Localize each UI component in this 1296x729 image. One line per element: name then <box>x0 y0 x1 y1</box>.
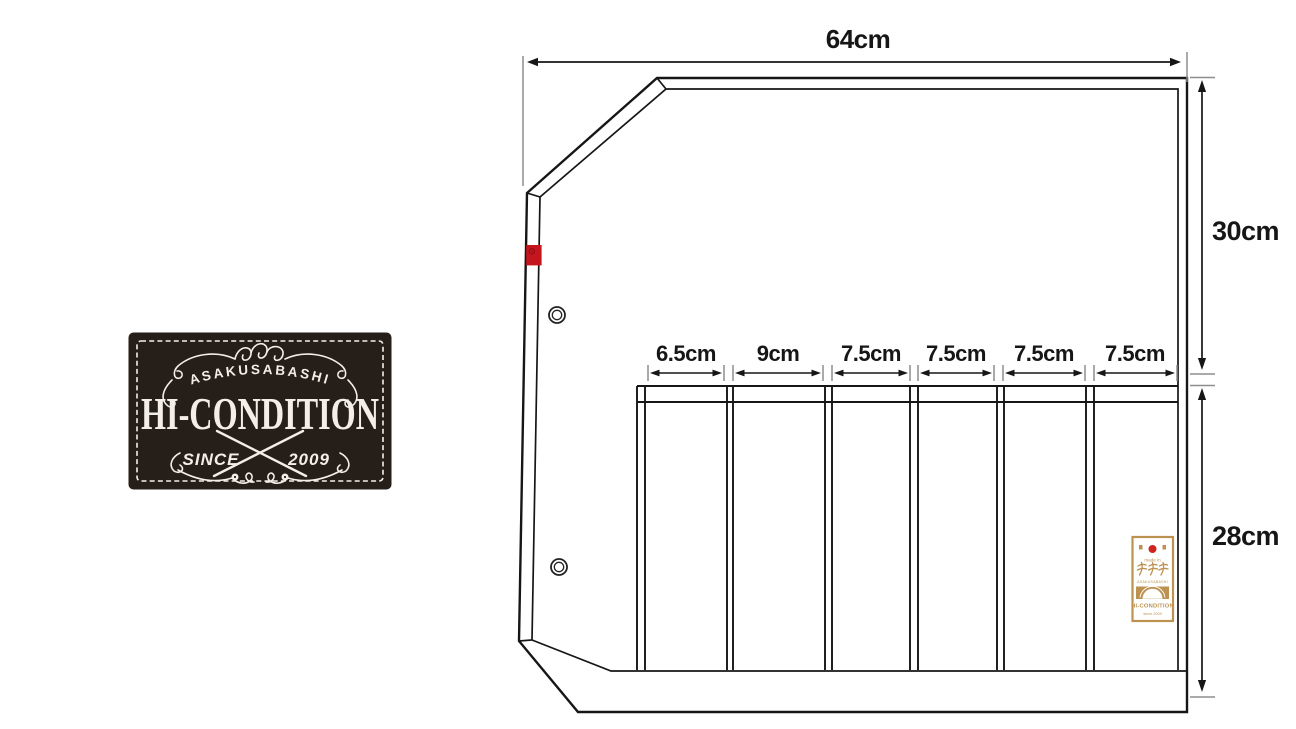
arrowhead-up-icon <box>1198 388 1206 400</box>
dim-label-top-width: 64cm <box>826 24 891 54</box>
knife-roll-diagram: made in ASAKUSABASHI HI-CONDITION since … <box>0 0 1296 729</box>
arrowhead-up-icon <box>1198 80 1206 92</box>
arrowhead-left-icon <box>527 58 538 66</box>
dim-label-upper-height: 30cm <box>1212 216 1279 246</box>
dim-label-pocket-3: 7.5cm <box>841 341 901 366</box>
arrowhead-down-icon <box>1198 680 1206 692</box>
care-label-since: since 2009 <box>1143 612 1161 616</box>
dim-label-pocket-5: 7.5cm <box>1014 341 1074 366</box>
red-sun-icon <box>1149 545 1157 553</box>
dim-label-pocket-2: 9cm <box>757 341 800 366</box>
seal-character-right <box>1163 545 1167 550</box>
arrowhead-down-icon <box>1198 358 1206 370</box>
seal-character-left <box>1139 545 1143 550</box>
dim-label-lower-height: 28cm <box>1212 521 1279 551</box>
dim-lower-height: 28cm <box>1190 386 1279 698</box>
snap-button-patch <box>526 245 541 265</box>
care-label-made-in: made in <box>1144 558 1161 563</box>
page: ASAKUSABASHI HI-CONDITION SINCE 2009 <box>0 0 1296 729</box>
dim-upper-height: 30cm <box>1190 78 1279 375</box>
arrowhead-right-icon <box>1170 58 1181 66</box>
dim-label-pocket-4: 7.5cm <box>926 341 986 366</box>
care-label-brand: HI-CONDITION <box>1131 604 1174 610</box>
dim-label-pocket-1: 6.5cm <box>656 341 716 366</box>
care-label: made in ASAKUSABASHI HI-CONDITION since … <box>1131 537 1174 621</box>
dim-label-pocket-6: 7.5cm <box>1105 341 1165 366</box>
care-label-romaji: ASAKUSABASHI <box>1137 580 1168 584</box>
